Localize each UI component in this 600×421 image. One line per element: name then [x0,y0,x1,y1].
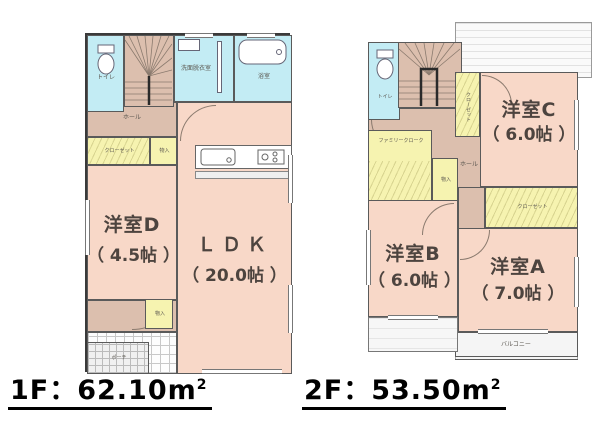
balcony-label: バルコニー [456,342,576,348]
room-yoshitsu-c-name: 洋室C [480,100,578,121]
window-washroom [185,33,213,38]
balcony-2f: バルコニー [455,332,578,360]
kitchen-icon [196,146,291,168]
floorplan-1f: 洗面脱衣室 浴室 トイレ ホール クローゼット 物入 洋室D （ 4.5帖 ） … [85,33,290,372]
window-ldk-east-1 [288,155,293,203]
closet-c-label: クローゼット [465,79,470,134]
storage-label-1f: 物入 [151,149,178,154]
kitchen-bar [195,171,292,179]
storage-entrance-1f: 物入 [145,299,173,329]
closet-c-2f: クローゼット [455,72,480,137]
bathtub-icon [238,39,287,65]
area-label-1f-text: 1F：62.10m [10,375,197,406]
area-label-1f-sup: 2 [197,377,208,393]
room-yoshitsu-a-size: （ 7.0帖 ） [458,285,578,304]
toilet-icon-2f [374,49,396,83]
floorplan-page: 洗面脱衣室 浴室 トイレ ホール クローゼット 物入 洋室D （ 4.5帖 ） … [0,0,600,421]
storage-2f: 物入 [432,158,458,202]
area-label-2f-sup: 2 [491,377,502,393]
family-cloak-label: ファミリークローク [369,139,433,144]
window-yoshitsu-a [574,257,579,307]
storage-label-2f: 物入 [433,178,459,183]
room-yoshitsu-b-size: （ 6.0帖 ） [368,272,458,291]
family-cloak-2f: ファミリークローク [368,130,432,202]
washroom-1f: 洗面脱衣室 [174,35,234,102]
window-yoshitsu-d [85,200,90,255]
toilet-label: トイレ [91,75,121,81]
room-yoshitsu-a-name: 洋室A [458,257,578,278]
washer-icon [217,41,222,93]
room-yoshitsu-d-size: （ 4.5帖 ） [87,247,177,266]
roof-below-b-2f [368,317,458,352]
room-yoshitsu-b-name: 洋室B [368,244,458,265]
hall-label-2f: ホール [456,162,482,168]
washroom-label: 洗面脱衣室 [175,66,217,72]
window-yoshitsu-a-south [478,329,548,334]
room-yoshitsu-c-size: （ 6.0帖 ） [480,126,578,145]
floorplan-2f: ホール トイレ [368,22,578,360]
stairs-2f [398,42,462,108]
storage-1f: 物入 [150,137,177,165]
storage-entrance-label: 物入 [146,312,174,317]
closet-a-2f: クローゼット [485,187,578,228]
bath-label: 浴室 [235,74,293,80]
room-yoshitsu-d-name: 洋室D [87,215,177,236]
porch-label: ポーチ [88,356,150,361]
kitchen-counter [195,145,292,169]
roof-area-2f [455,22,592,78]
bathroom-1f: 浴室 [234,35,292,102]
hall-corridor-2f [458,187,485,230]
toilet-room-2f: トイレ [368,42,400,120]
closet-label-1f: クローゼット [88,149,151,154]
stairs-1f [124,35,174,107]
closet-a-label: クローゼット [486,205,579,210]
closet-1f: クローゼット [87,137,150,165]
window-yoshitsu-c [574,100,579,150]
window-ldk-east-2 [288,285,293,333]
window-yoshitsu-b-south [388,315,438,320]
stairs-icon-2f [399,43,460,106]
toilet-label-2f: トイレ [369,95,401,100]
vanity-icon [178,39,200,51]
room-ldk-size: （ 20.0帖 ） [177,267,292,286]
window-yoshitsu-b [366,230,371,285]
window-bath [247,33,275,38]
family-cloak-hatch [369,161,430,200]
area-label-2f-text: 2F：53.50m [304,375,491,406]
stairs-icon [125,36,172,105]
hall-label-1f: ホール [107,115,157,121]
toilet-icon [95,44,117,78]
area-label-2f: 2F：53.50m2 [302,368,506,410]
window-ldk-south [202,369,282,374]
area-label-1f: 1F：62.10m2 [8,368,212,410]
room-ldk-name: ＬＤＫ [177,235,292,256]
